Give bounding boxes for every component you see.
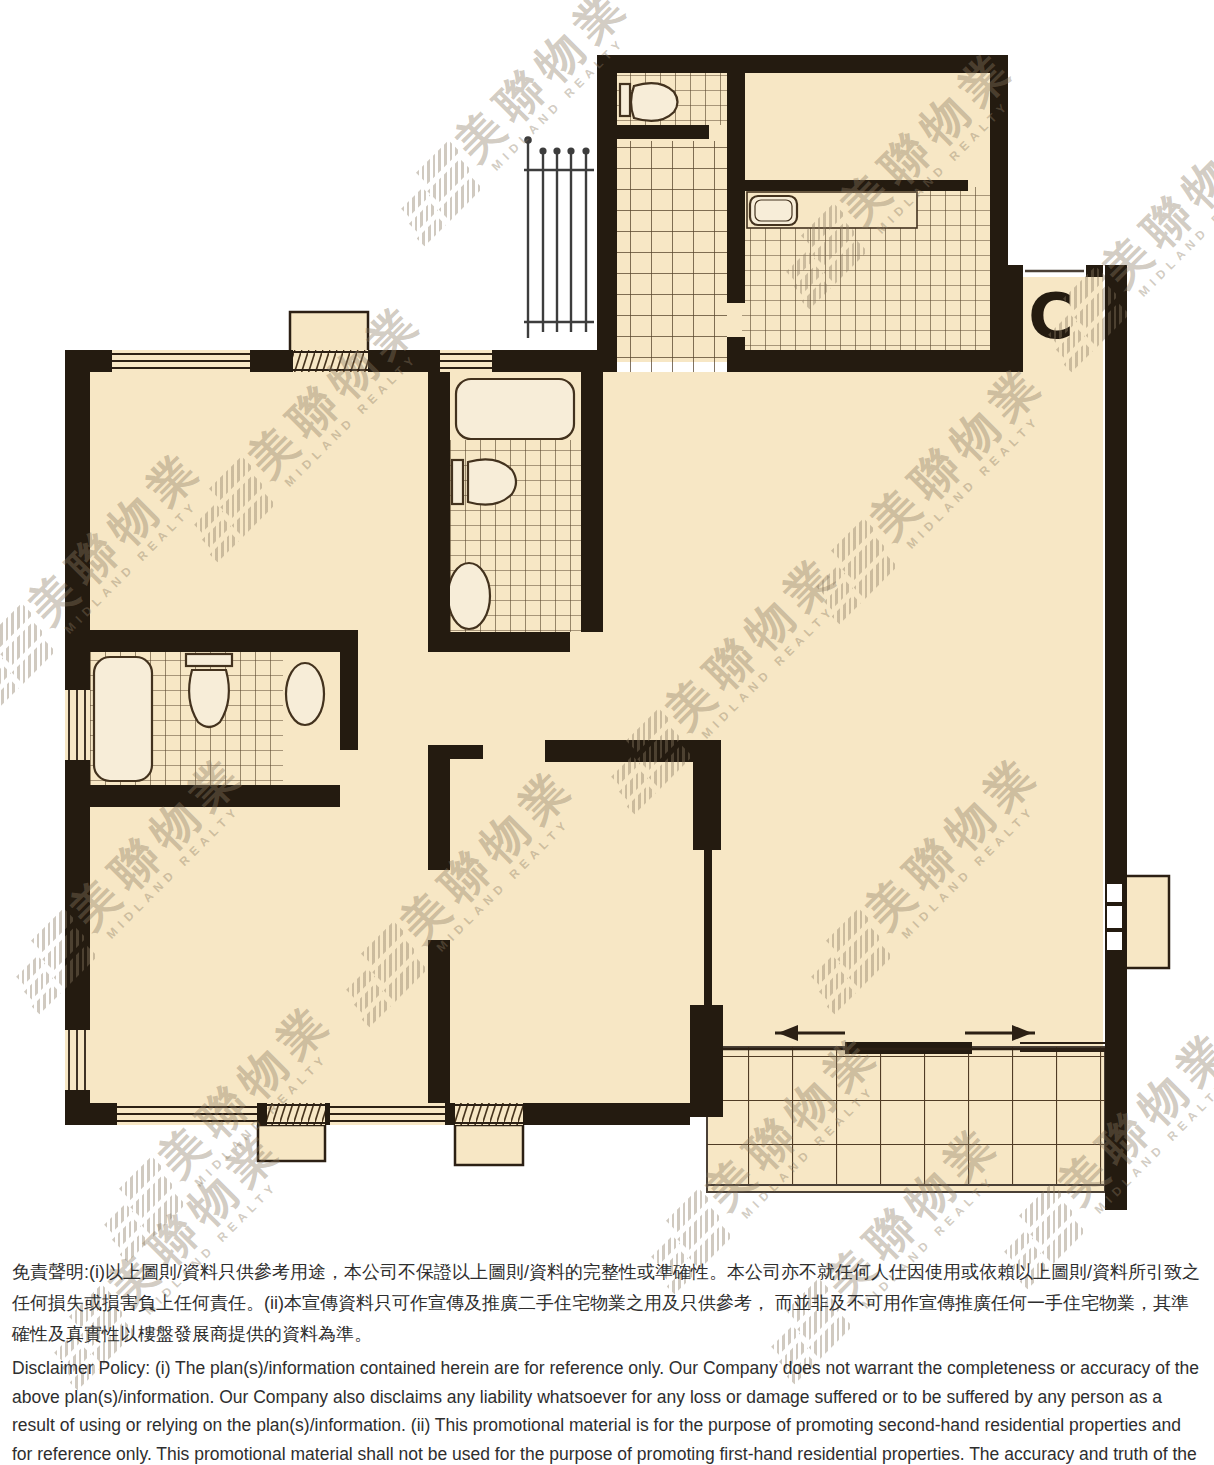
kitchen-tiles	[617, 141, 727, 372]
wall-right	[1105, 265, 1127, 1210]
disclaimer-en: Disclaimer Policy: (i) The plan(s)/infor…	[12, 1354, 1206, 1465]
toilet-bathroom2	[452, 459, 516, 504]
utility-tiles-main	[742, 228, 990, 350]
bay-window-box	[1125, 876, 1169, 968]
window-bottom-1	[117, 1103, 257, 1125]
window-top-louvre	[293, 350, 368, 372]
floorplan-page: C 美聯物業 MIDLAND REALTY 美聯物業 MIDLAND REALT…	[0, 0, 1214, 1465]
bathtub-ensuite	[94, 657, 152, 781]
ac-ledge-bottom-1	[258, 1125, 325, 1161]
disclaimer: 免責聲明:(i)以上圖則/資料只供參考用途，本公司不保證以上圖則/資料的完整性或…	[12, 1257, 1206, 1465]
bathtub-bathroom2	[456, 379, 574, 439]
unit-label: C	[1028, 280, 1074, 353]
bay-window-slots	[1107, 884, 1122, 950]
toilet-annex	[620, 83, 678, 121]
ac-ledge-bottom-2	[455, 1125, 523, 1165]
floorplan: C	[0, 0, 1214, 1240]
window-bottom-louvre-1	[267, 1103, 325, 1125]
window-top-1	[112, 350, 250, 372]
window-left-2	[65, 1030, 90, 1090]
sink-bathroom2	[448, 563, 490, 629]
ac-ledge-top	[290, 312, 368, 352]
window-bottom-2	[330, 1103, 445, 1125]
utility-tiles-upper	[915, 187, 990, 228]
window-top-2	[440, 350, 492, 372]
lightwell-grille	[524, 137, 594, 338]
window-left-1	[65, 690, 90, 760]
disclaimer-zh: 免責聲明:(i)以上圖則/資料只供參考用途，本公司不保證以上圖則/資料的完整性或…	[12, 1257, 1206, 1350]
window-bottom-louvre-2	[455, 1103, 523, 1125]
balcony-tiles	[707, 1047, 1105, 1185]
sink-ensuite	[286, 663, 324, 725]
